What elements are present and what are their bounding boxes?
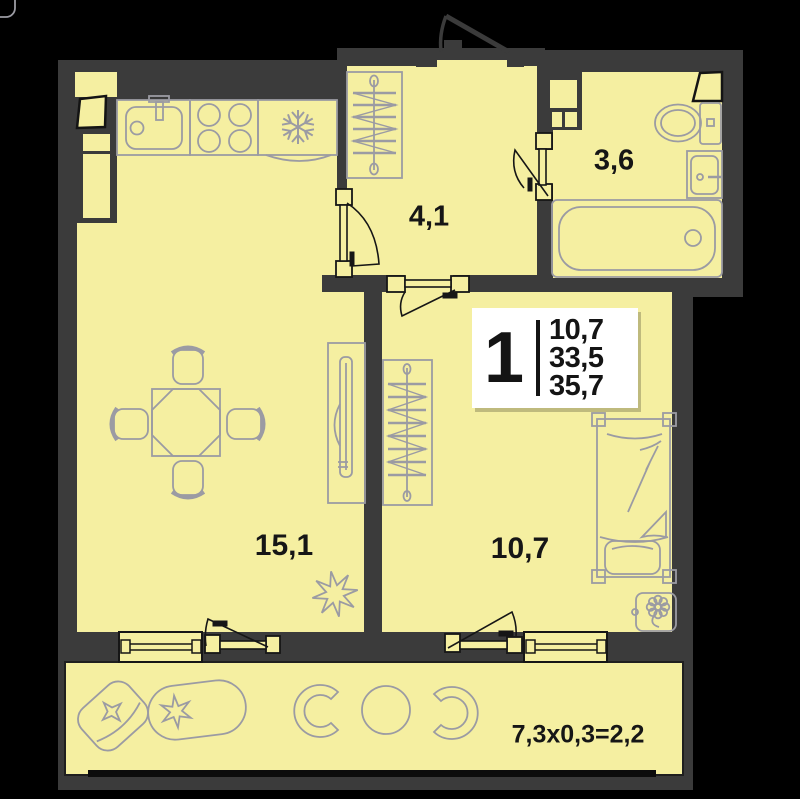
- apartment-stats-card: 1 10,7 33,5 35,7: [472, 308, 638, 408]
- hallway-area-label: 4,1: [409, 201, 449, 234]
- total-area-value: 35,7: [549, 372, 603, 400]
- area-without-balcony-value: 33,5: [549, 344, 603, 372]
- floor-plan: 4,1 3,6 15,1 10,7 7,3x0,3=2,2 1 10,7 33,…: [0, 0, 800, 799]
- entrance-door-icon: [416, 16, 524, 67]
- balcony-floor: [65, 662, 683, 775]
- bedroom-area-label: 10,7: [491, 532, 549, 566]
- bathroom-area-label: 3,6: [594, 145, 634, 178]
- window-icon: [119, 632, 202, 662]
- balcony-area-formula: 7,3x0,3=2,2: [512, 721, 645, 750]
- window-icon: [524, 632, 607, 662]
- area-stats: 10,7 33,5 35,7: [549, 316, 603, 400]
- living-area-value: 10,7: [549, 316, 603, 344]
- floor-plan-drawing: [0, 0, 800, 799]
- riser-shaft-icon: [77, 96, 106, 128]
- rooms-count: 1: [472, 313, 536, 403]
- balcony-railing: [88, 770, 656, 777]
- living-room-area-label: 15,1: [255, 529, 313, 563]
- stats-divider: [536, 320, 540, 396]
